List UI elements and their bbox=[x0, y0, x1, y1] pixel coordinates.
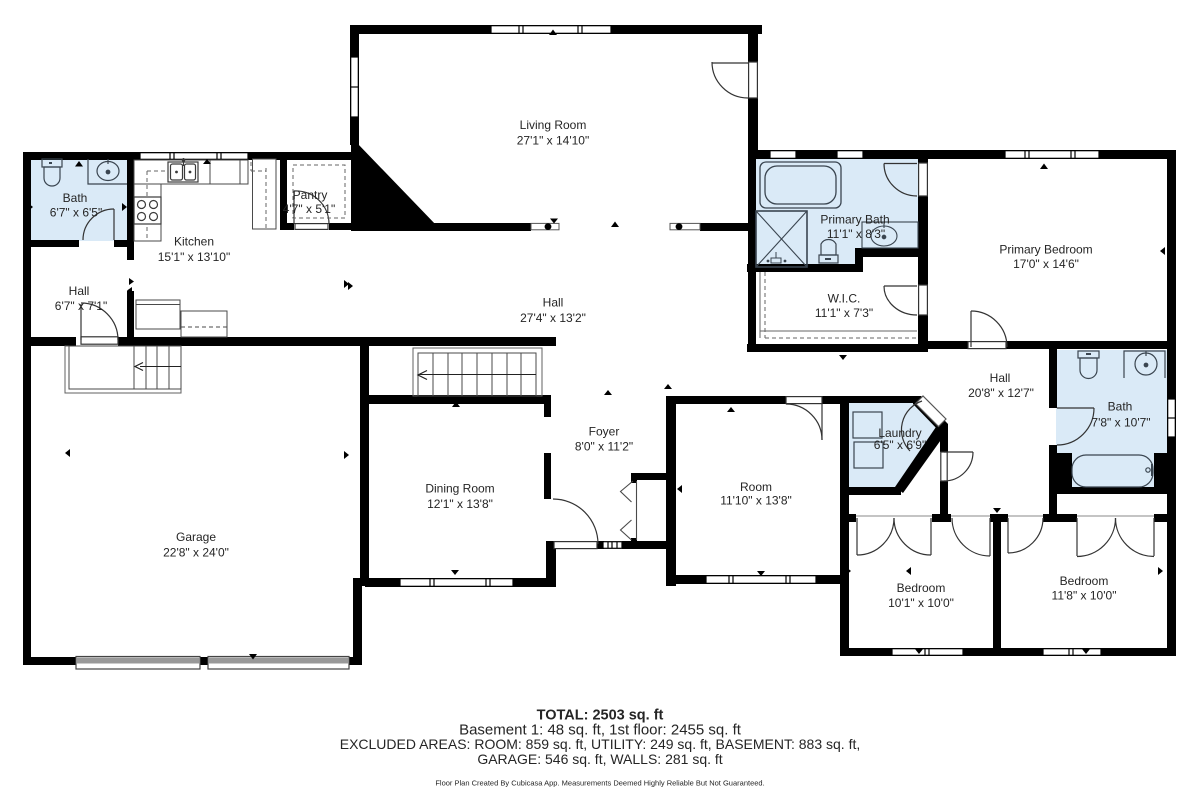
svg-text:17'0" x 14'6": 17'0" x 14'6" bbox=[1013, 257, 1079, 271]
svg-text:Floor Plan Created By Cubicasa: Floor Plan Created By Cubicasa App. Meas… bbox=[435, 779, 764, 788]
svg-text:6'7" x 6'5": 6'7" x 6'5" bbox=[50, 206, 102, 220]
svg-text:27'4" x 13'2": 27'4" x 13'2" bbox=[520, 311, 586, 325]
svg-text:Primary Bedroom: Primary Bedroom bbox=[999, 243, 1092, 257]
svg-text:W.I.C.: W.I.C. bbox=[828, 292, 861, 306]
svg-text:Foyer: Foyer bbox=[589, 425, 620, 439]
svg-text:Living Room: Living Room bbox=[520, 118, 587, 132]
svg-text:11'8" x 10'0": 11'8" x 10'0" bbox=[1052, 589, 1117, 603]
svg-text:27'1" x 14'10": 27'1" x 14'10" bbox=[517, 134, 590, 148]
svg-text:7'8" x 10'7": 7'8" x 10'7" bbox=[1091, 416, 1150, 430]
svg-text:8'0" x 11'2": 8'0" x 11'2" bbox=[575, 440, 633, 454]
svg-text:11'1" x 7'3": 11'1" x 7'3" bbox=[815, 306, 873, 320]
svg-text:Hall: Hall bbox=[990, 371, 1011, 385]
svg-text:20'8" x 12'7": 20'8" x 12'7" bbox=[968, 386, 1034, 400]
svg-text:6'5" x 6'9": 6'5" x 6'9" bbox=[874, 438, 926, 452]
svg-text:11'10" x 13'8": 11'10" x 13'8" bbox=[720, 494, 792, 508]
svg-text:11'1" x 8'3": 11'1" x 8'3" bbox=[827, 227, 885, 241]
svg-text:Kitchen: Kitchen bbox=[174, 235, 214, 249]
svg-text:Bath: Bath bbox=[63, 191, 88, 205]
svg-text:Room: Room bbox=[740, 480, 772, 494]
svg-text:12'1" x 13'8": 12'1" x 13'8" bbox=[427, 497, 493, 511]
svg-text:10'1" x 10'0": 10'1" x 10'0" bbox=[888, 596, 954, 610]
svg-text:6'7" x 7'1": 6'7" x 7'1" bbox=[55, 299, 107, 313]
svg-text:Pantry: Pantry bbox=[293, 188, 328, 202]
svg-text:Garage: Garage bbox=[176, 530, 216, 544]
svg-text:4'7" x 5'1": 4'7" x 5'1" bbox=[283, 202, 335, 216]
svg-text:Dining Room: Dining Room bbox=[425, 482, 494, 496]
svg-text:Bedroom: Bedroom bbox=[1060, 574, 1109, 588]
svg-text:22'8" x 24'0": 22'8" x 24'0" bbox=[163, 546, 229, 560]
svg-text:Hall: Hall bbox=[69, 284, 90, 298]
svg-text:EXCLUDED AREAS: ROOM: 859 sq.: EXCLUDED AREAS: ROOM: 859 sq. ft, UTILIT… bbox=[340, 736, 861, 752]
svg-text:Bath: Bath bbox=[1108, 400, 1133, 414]
svg-text:GARAGE: 546 sq. ft, WALLS: 281: GARAGE: 546 sq. ft, WALLS: 281 sq. ft bbox=[477, 751, 722, 767]
svg-text:Hall: Hall bbox=[543, 296, 564, 310]
svg-text:15'1" x 13'10": 15'1" x 13'10" bbox=[158, 250, 231, 264]
svg-text:Primary Bath: Primary Bath bbox=[820, 213, 889, 227]
svg-text:Bedroom: Bedroom bbox=[897, 581, 946, 595]
